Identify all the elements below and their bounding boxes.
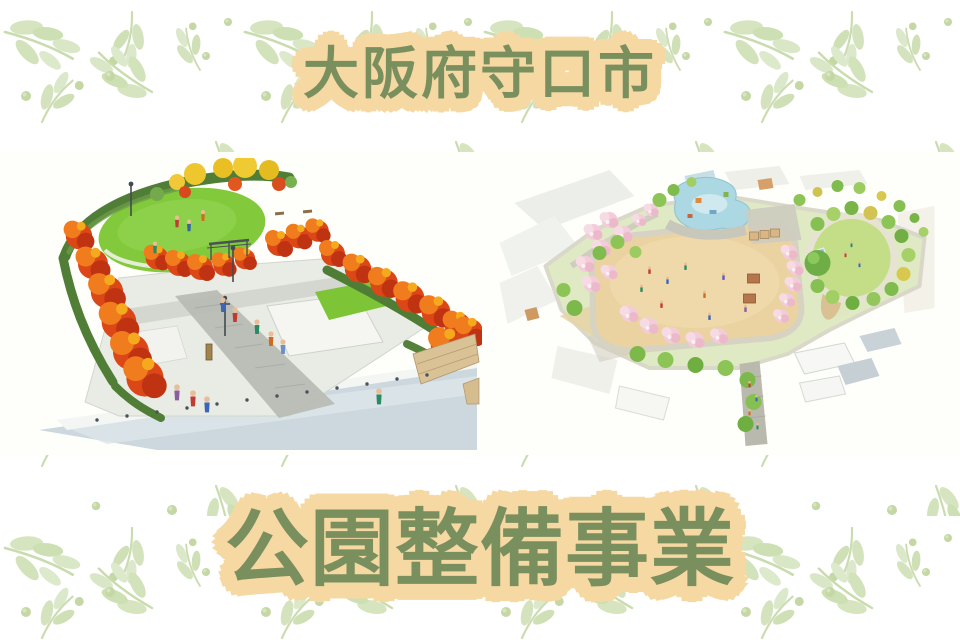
image-band [0, 152, 960, 455]
banner-page: 大阪府守口市 公園整備事業 [0, 0, 960, 640]
aerial-park-plan-rendering [496, 158, 938, 448]
autumn-park-perspective-rendering [22, 158, 482, 450]
page-title-project: 公園整備事業 [0, 506, 960, 593]
page-title-city: 大阪府守口市 [0, 46, 960, 104]
